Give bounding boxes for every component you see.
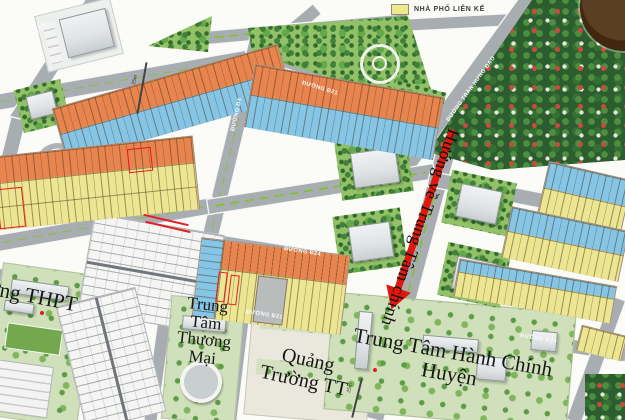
office-building-2 bbox=[348, 221, 395, 262]
park-circle-inner bbox=[372, 56, 387, 71]
office-building-3 bbox=[455, 183, 503, 225]
big-building-pad bbox=[34, 0, 124, 73]
red-highlight-2 bbox=[0, 187, 26, 229]
green-wedge bbox=[148, 14, 212, 52]
red-highlight-1 bbox=[127, 147, 153, 173]
legend-swatch-yellow bbox=[391, 4, 409, 15]
corner-village bbox=[585, 374, 625, 420]
red-dot-1 bbox=[40, 311, 44, 315]
office-pad-3 bbox=[441, 170, 517, 237]
legend: NHÀ PHỐ LIÊN KẾ bbox=[391, 4, 485, 15]
band-g2-yellow-row bbox=[577, 326, 625, 361]
school-parking bbox=[0, 359, 54, 419]
big-building bbox=[59, 8, 115, 58]
plot-band-g2 bbox=[576, 325, 625, 362]
masterplan-map: 25m 25m ĐƯỜNG D2 ĐƯỜNG D4 ĐƯỜNG Đ21 ĐƯỜN… bbox=[0, 0, 625, 420]
legend-label: NHÀ PHỐ LIÊN KẾ bbox=[414, 6, 485, 13]
mall-label: Trung Tâm Thương Mại bbox=[168, 293, 241, 370]
school-field bbox=[4, 322, 63, 356]
